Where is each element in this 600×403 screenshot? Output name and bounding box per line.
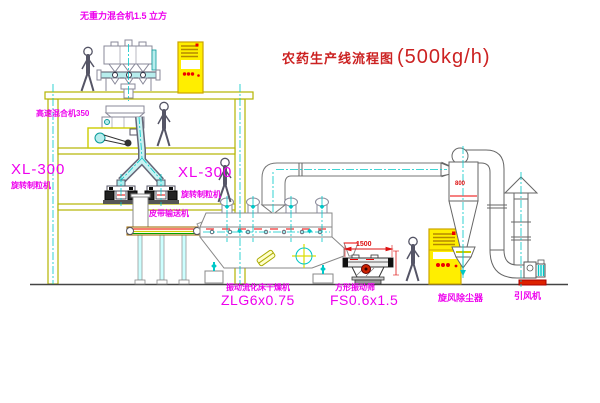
label-fan: 引风机 (514, 292, 541, 301)
label-screen-name: 方形振动筛 (335, 284, 375, 292)
diagram-canvas: 农药生产线流程图 (500kg/h) 无重力混合机1.5 立方 高速混合机350… (0, 0, 600, 403)
diagram-title: 农药生产线流程图 (500kg/h) (282, 46, 491, 69)
label-gravity-mixer: 无重力混合机1.5 立方 (80, 12, 167, 21)
label-granulator-right-name: 旋转制粒机 (181, 191, 221, 199)
dimension-cyclone: 800 (455, 181, 465, 187)
vibrating-screen (343, 245, 399, 284)
title-capacity: (500kg/h) (397, 46, 491, 69)
label-cyclone: 旋风除尘器 (438, 294, 483, 303)
label-granulator-left-name: 旋转制粒机 (11, 182, 51, 190)
label-high-speed-mixer: 高速混合机350 (36, 110, 89, 118)
label-dryer-name: 振动流化床干燥机 (226, 284, 290, 292)
label-granulator-right-model: XL-300 (178, 165, 232, 180)
label-belt-conveyor: 皮带输送机 (149, 210, 189, 218)
dimension-screen-length: 1500 (356, 241, 372, 248)
label-screen-model: FS0.6x1.5 (330, 293, 398, 307)
control-cabinet-upper (178, 42, 203, 93)
title-text: 农药生产线流程图 (282, 48, 394, 67)
drop-duct (131, 194, 150, 228)
label-dryer-model: ZLG6x0.75 (221, 293, 295, 307)
high-speed-mixer (88, 106, 144, 148)
label-granulator-left-model: XL-300 (11, 162, 65, 177)
